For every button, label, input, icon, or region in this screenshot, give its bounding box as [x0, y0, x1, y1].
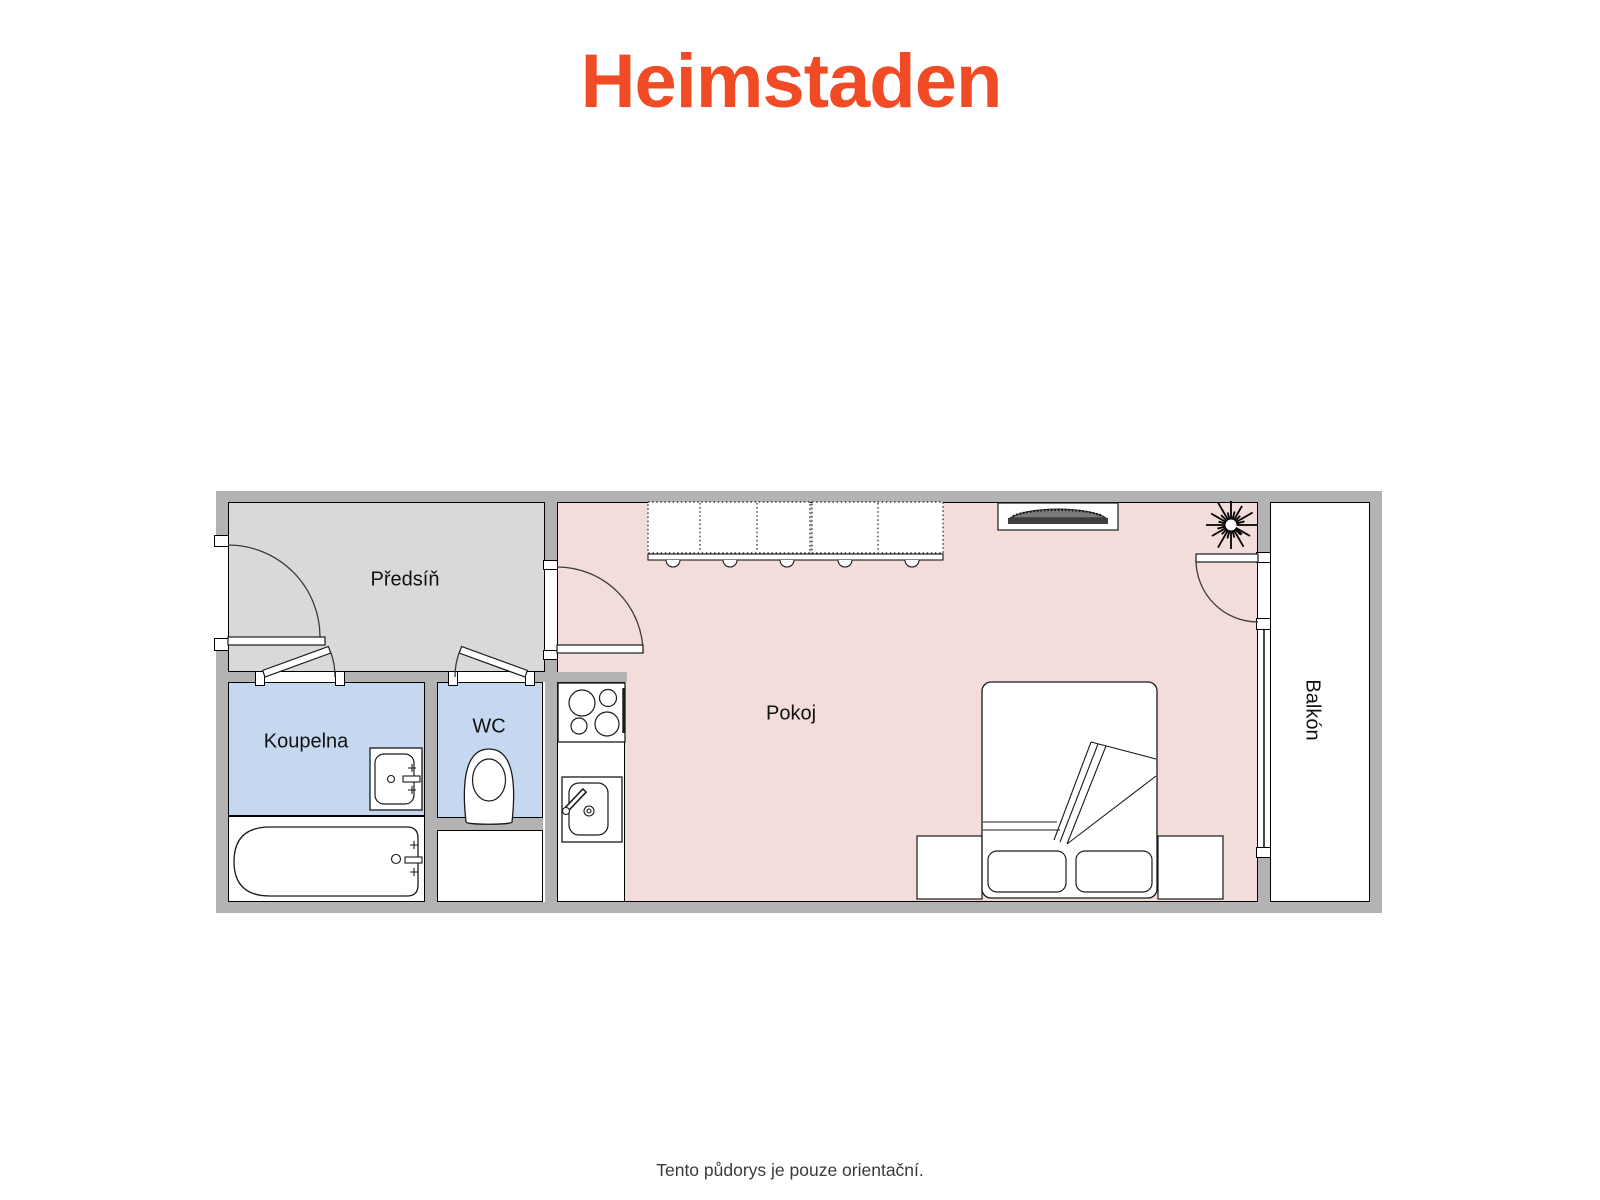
disclaimer-text: Tento půdorys je pouze orientační. — [656, 1160, 924, 1181]
floor-plan: Předsíň Koupelna WC Pokoj Balkón — [0, 0, 1600, 1200]
wardrobe-icon — [648, 502, 943, 567]
washbasin-icon — [370, 748, 422, 810]
koupelna-door-icon — [263, 646, 335, 677]
room-label-pokoj: Pokoj — [766, 703, 816, 726]
entrance-door-icon — [228, 545, 325, 645]
toilet-icon — [464, 749, 513, 824]
balcony-door-icon — [1196, 554, 1258, 622]
double-bed-icon — [917, 682, 1223, 899]
room-label-koupelna: Koupelna — [264, 731, 349, 754]
nightstand-icon — [917, 836, 982, 899]
plant-icon — [1206, 501, 1257, 549]
page: Heimstaden — [0, 0, 1600, 1200]
pillow-icon — [1076, 851, 1152, 892]
room-label-wc: WC — [472, 716, 505, 739]
bathtub-icon — [234, 827, 422, 896]
room-label-predsin: Předsíň — [371, 569, 440, 592]
nightstand-icon — [1158, 836, 1223, 899]
kitchen-sink-icon — [562, 777, 622, 842]
pokoj-door-icon — [557, 567, 643, 653]
room-label-balkon: Balkón — [1301, 679, 1324, 740]
tv-icon — [998, 503, 1118, 530]
wc-door-icon — [455, 646, 527, 677]
plan-objects — [0, 0, 1600, 1200]
pillow-icon — [988, 851, 1066, 892]
stove-icon — [558, 683, 625, 742]
